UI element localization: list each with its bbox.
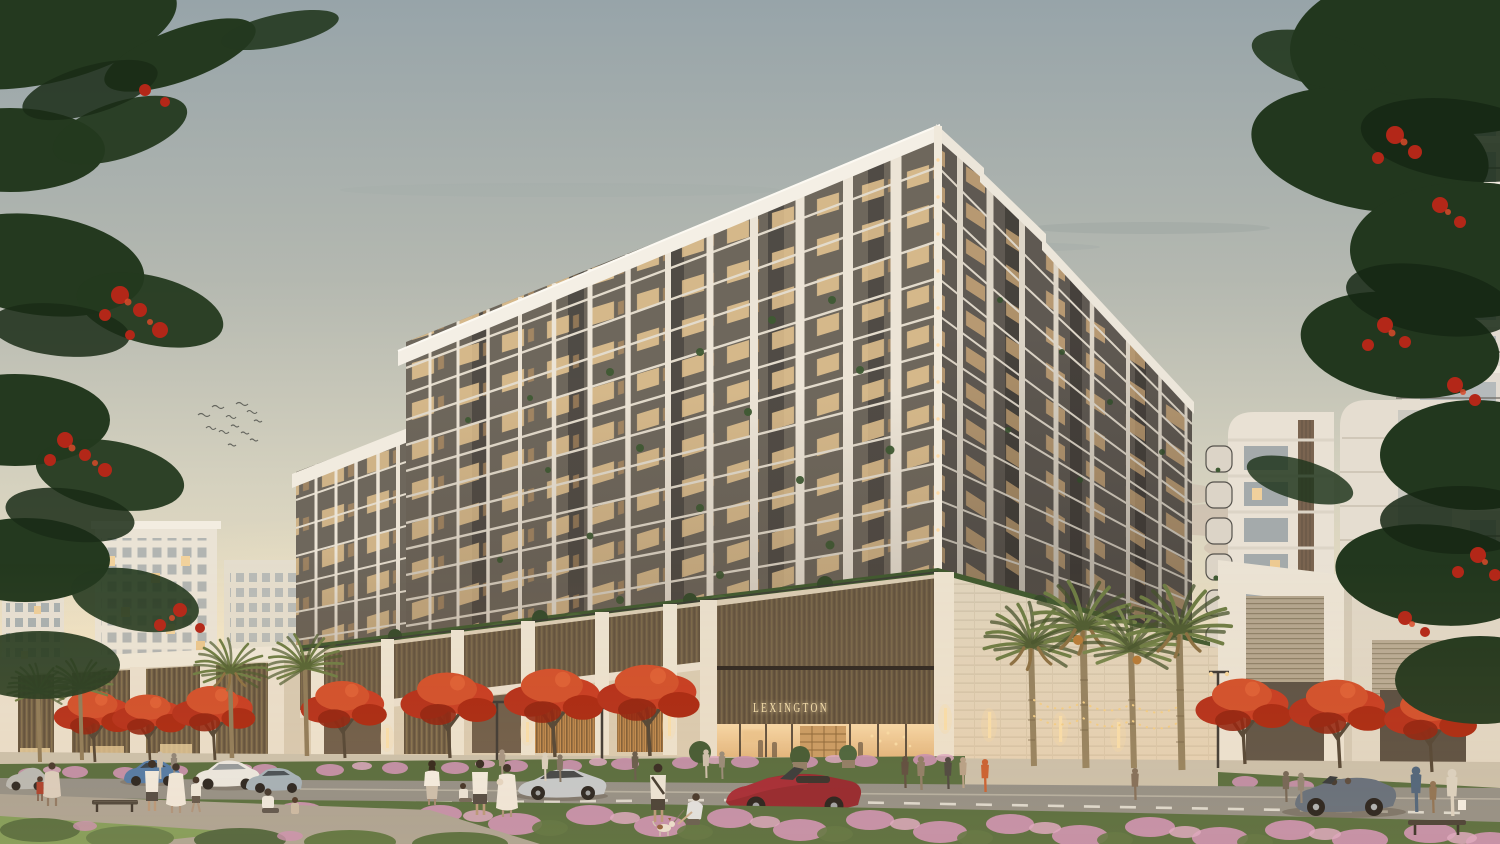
rendering-canvas: LEXINGTON LEXINGTON bbox=[0, 0, 1500, 844]
dusk-warm-wash bbox=[0, 560, 1500, 844]
corner-pier bbox=[934, 126, 942, 576]
